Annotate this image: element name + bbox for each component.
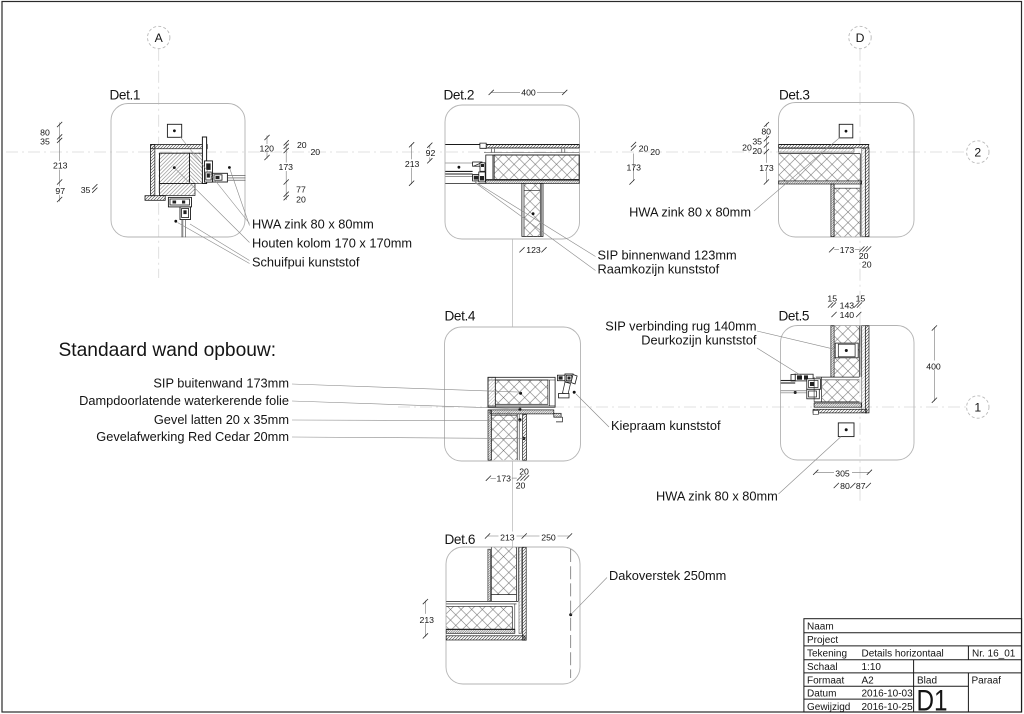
svg-text:80: 80 (840, 481, 850, 491)
svg-text:Raamkozijn kunststof: Raamkozijn kunststof (598, 262, 720, 277)
svg-text:Det.6: Det.6 (445, 532, 476, 547)
svg-text:173: 173 (840, 245, 855, 255)
svg-text:92: 92 (426, 148, 436, 158)
svg-text:A2: A2 (862, 675, 875, 686)
svg-text:SIP buitenwand 173mm: SIP buitenwand 173mm (153, 376, 289, 391)
svg-text:Project: Project (807, 635, 838, 646)
svg-text:213: 213 (420, 615, 435, 625)
svg-text:Standaard wand opbouw:: Standaard wand opbouw: (59, 340, 277, 361)
svg-text:Deurkozijn kunststof: Deurkozijn kunststof (641, 333, 757, 348)
svg-text:Gevel latten 20 x 35mm: Gevel latten 20 x 35mm (154, 412, 289, 427)
svg-text:Det.2: Det.2 (444, 88, 475, 103)
svg-text:Det.1: Det.1 (110, 88, 141, 103)
svg-text:D1: D1 (917, 685, 948, 714)
svg-text:20: 20 (296, 195, 306, 205)
svg-text:HWA zink 80 x 80mm: HWA zink 80 x 80mm (656, 489, 778, 504)
svg-text:77: 77 (296, 185, 306, 195)
svg-text:Tekening: Tekening (807, 649, 847, 660)
svg-text:D: D (856, 31, 865, 45)
svg-text:Dampdoorlatende waterkerende f: Dampdoorlatende waterkerende folie (79, 393, 289, 408)
svg-text:15: 15 (856, 293, 866, 303)
svg-text:20: 20 (516, 480, 526, 490)
svg-text:Houten kolom 170 x 170mm: Houten kolom 170 x 170mm (252, 236, 412, 251)
svg-text:80: 80 (761, 126, 771, 136)
svg-text:Det.4: Det.4 (445, 309, 476, 324)
svg-text:2016-10-25: 2016-10-25 (862, 702, 914, 713)
svg-text:HWA zink 80 x 80mm: HWA zink 80 x 80mm (629, 205, 751, 220)
svg-text:20: 20 (862, 260, 872, 270)
svg-text:140: 140 (840, 310, 855, 320)
svg-text:97: 97 (55, 186, 65, 196)
svg-text:Kiepraam kunststof: Kiepraam kunststof (611, 418, 721, 433)
svg-text:87: 87 (856, 481, 866, 491)
svg-text:Schuifpui kunststof: Schuifpui kunststof (252, 255, 360, 270)
svg-text:250: 250 (541, 532, 556, 542)
svg-text:Paraaf: Paraaf (972, 675, 1002, 686)
svg-text:Det.5: Det.5 (779, 309, 810, 324)
svg-text:Details horizontaal: Details horizontaal (862, 649, 944, 660)
svg-text:123: 123 (526, 245, 541, 255)
svg-text:173: 173 (627, 163, 642, 173)
svg-text:400: 400 (521, 88, 536, 98)
svg-text:2016-10-03: 2016-10-03 (862, 689, 914, 700)
svg-text:Nr. 16_01: Nr. 16_01 (972, 649, 1016, 660)
svg-text:213: 213 (500, 532, 515, 542)
svg-text:213: 213 (405, 159, 420, 169)
svg-text:35: 35 (81, 185, 91, 195)
svg-text:173: 173 (279, 162, 294, 172)
svg-text:120: 120 (260, 144, 275, 154)
svg-text:35: 35 (40, 137, 50, 147)
svg-text:213: 213 (53, 161, 68, 171)
svg-text:173: 173 (497, 473, 512, 483)
svg-text:20: 20 (752, 146, 762, 156)
svg-text:SIP binnenwand 123mm: SIP binnenwand 123mm (598, 248, 737, 263)
svg-text:HWA zink 80 x 80mm: HWA zink 80 x 80mm (252, 217, 374, 232)
svg-text:305: 305 (835, 468, 850, 478)
svg-text:20: 20 (310, 147, 320, 157)
svg-text:2: 2 (974, 145, 981, 159)
svg-text:A: A (155, 31, 164, 45)
svg-text:20: 20 (519, 467, 529, 477)
svg-text:Det.3: Det.3 (779, 88, 810, 103)
svg-text:20: 20 (650, 147, 660, 157)
svg-text:Gewijzigd: Gewijzigd (807, 702, 850, 713)
svg-text:Gevelafwerking Red Cedar 20mm: Gevelafwerking Red Cedar 20mm (96, 429, 289, 444)
svg-text:20: 20 (297, 140, 307, 150)
svg-text:1: 1 (974, 400, 981, 414)
svg-text:20: 20 (742, 142, 752, 152)
svg-text:173: 173 (759, 163, 774, 173)
svg-text:Datum: Datum (807, 689, 836, 700)
svg-text:20: 20 (639, 143, 649, 153)
svg-text:1:10: 1:10 (862, 662, 882, 673)
svg-text:400: 400 (926, 361, 941, 371)
svg-text:Naam: Naam (807, 622, 834, 633)
svg-text:Formaat: Formaat (807, 675, 844, 686)
svg-text:15: 15 (827, 293, 837, 303)
svg-text:143: 143 (840, 300, 855, 310)
svg-text:Schaal: Schaal (807, 662, 838, 673)
svg-text:Dakoverstek 250mm: Dakoverstek 250mm (609, 568, 726, 583)
svg-text:SIP verbinding rug 140mm: SIP verbinding rug 140mm (605, 319, 756, 334)
